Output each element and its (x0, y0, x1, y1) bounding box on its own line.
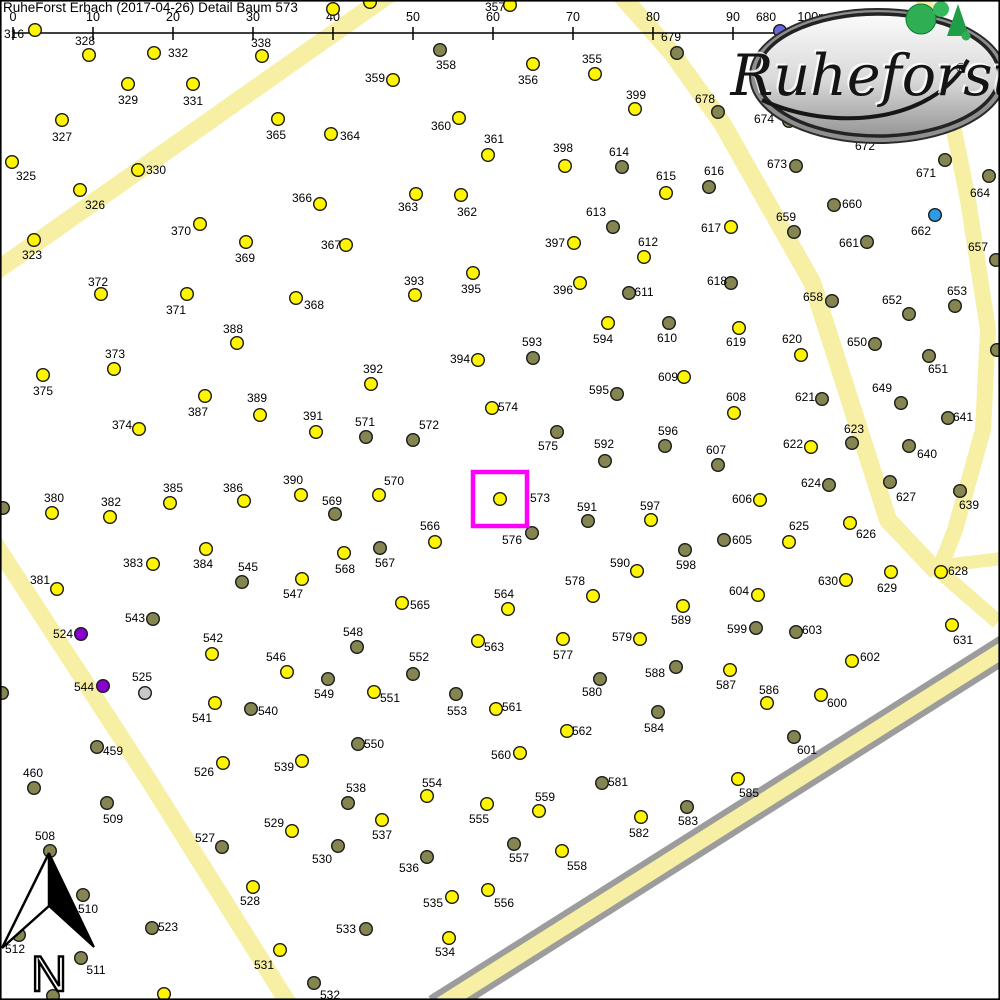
tree-label-575: 575 (538, 439, 558, 453)
tree-dot-582[interactable] (635, 811, 648, 824)
tree-dot-622[interactable] (805, 441, 818, 454)
tree-dot-640[interactable] (903, 440, 916, 453)
tree-dot-564[interactable] (502, 603, 515, 616)
tree-dot-607[interactable] (712, 459, 725, 472)
tree-dot[interactable] (327, 3, 340, 16)
tree-label-571: 571 (355, 415, 375, 429)
tree-label-619: 619 (726, 335, 746, 349)
map-canvas[interactable]: 0102030405060708090100m 3163283323383573… (0, 0, 1000, 1000)
tree-dot-551[interactable] (368, 686, 381, 699)
tree-label-653: 653 (947, 284, 967, 298)
tree-dot-584[interactable] (652, 706, 665, 719)
tree-dot-370[interactable] (194, 218, 207, 231)
tree-label-358: 358 (436, 58, 456, 72)
tree-dot-545[interactable] (236, 576, 249, 589)
tree-dot-625[interactable] (783, 536, 796, 549)
tree-dot-558[interactable] (556, 845, 569, 858)
tree-dot-327[interactable] (56, 114, 69, 127)
tree-label-510: 510 (78, 902, 98, 916)
tree-dot-526[interactable] (217, 757, 230, 770)
tree-label-674: 674 (754, 112, 774, 126)
tree-dot-374[interactable] (133, 423, 146, 436)
tree-dot-540[interactable] (245, 703, 258, 716)
tree-label-375: 375 (33, 384, 53, 398)
tree-dot-591[interactable] (582, 515, 595, 528)
tree-dot-390[interactable] (295, 489, 308, 502)
tree-dot-529[interactable] (286, 825, 299, 838)
tree-label-566: 566 (420, 519, 440, 533)
tree-label-614: 614 (609, 145, 629, 159)
tree-dot-569[interactable] (329, 508, 342, 521)
tree-dot-380[interactable] (46, 507, 59, 520)
tree-dot-606[interactable] (754, 494, 767, 507)
tree-dot-384[interactable] (200, 543, 213, 556)
tree-dot-620[interactable] (795, 349, 808, 362)
tree-dot-394[interactable] (472, 354, 485, 367)
tree-label-393: 393 (404, 274, 424, 288)
tree-dot-570[interactable] (373, 489, 386, 502)
tree-label-658: 658 (803, 290, 823, 304)
tree-label-604: 604 (729, 584, 749, 598)
tree-dot-323[interactable] (28, 234, 41, 247)
tree-dot-555[interactable] (481, 798, 494, 811)
tree-label-628: 628 (948, 564, 968, 578)
tree-dot-395[interactable] (467, 267, 480, 280)
tree-label-356: 356 (518, 73, 538, 87)
tree-dot-673[interactable] (790, 160, 803, 173)
tree-dot-661[interactable] (861, 236, 874, 249)
tree-dot-525[interactable] (139, 687, 152, 700)
tree-dot-548[interactable] (351, 641, 364, 654)
tree-dot-367[interactable] (340, 239, 353, 252)
tree-dot-330[interactable] (132, 164, 145, 177)
tree-dot-386[interactable] (238, 495, 251, 508)
tree-label-680: 680 (756, 10, 776, 24)
tree-dot-590[interactable] (631, 565, 644, 578)
tree-label-523: 523 (158, 920, 178, 934)
tree-label-394: 394 (450, 352, 470, 366)
tree-label-580: 580 (582, 685, 602, 699)
tree-dot-528[interactable] (247, 881, 260, 894)
tree-dot-325[interactable] (6, 156, 19, 169)
tree-dot-565[interactable] (396, 597, 409, 610)
tree-label-548: 548 (343, 625, 363, 639)
tree-label-525: 525 (132, 670, 152, 684)
tree-dot-382[interactable] (104, 511, 117, 524)
tree-dot-530[interactable] (332, 840, 345, 853)
tree-dot-628[interactable] (935, 566, 948, 579)
tree-dot-587[interactable] (724, 664, 737, 677)
tree-dot-389[interactable] (254, 409, 267, 422)
tree-dot-578[interactable] (587, 590, 600, 603)
tree-dot-527[interactable] (216, 841, 229, 854)
tree-label-549: 549 (314, 687, 334, 701)
tree-dot-381[interactable] (51, 583, 64, 596)
tree-label-380: 380 (44, 491, 64, 505)
tree-label-625: 625 (789, 519, 809, 533)
tree-label-537: 537 (372, 828, 392, 842)
tree-dot-594[interactable] (602, 317, 615, 330)
tree-dot-571[interactable] (360, 431, 373, 444)
tree-label-546: 546 (266, 650, 286, 664)
tree-label-629: 629 (877, 581, 897, 595)
tree-dot-600[interactable] (815, 689, 828, 702)
tree-dot-369[interactable] (240, 236, 253, 249)
tree-dot-581[interactable] (596, 777, 609, 790)
tree-dot-534[interactable] (443, 932, 456, 945)
tree-dot-596[interactable] (659, 440, 672, 453)
tree-label-630: 630 (818, 574, 838, 588)
tree-dot-651[interactable] (923, 350, 936, 363)
tree-dot-373[interactable] (108, 363, 121, 376)
tree-label-569: 569 (322, 494, 342, 508)
tree-dot-653[interactable] (949, 300, 962, 313)
tree-dot-597[interactable] (645, 514, 658, 527)
tree-label-560: 560 (491, 748, 511, 762)
tree-dot-372[interactable] (95, 288, 108, 301)
tree-label-589: 589 (671, 613, 691, 627)
tree-dot-329[interactable] (122, 78, 135, 91)
tree-dot-614[interactable] (616, 161, 629, 174)
tree-label-541: 541 (192, 711, 212, 725)
tree-label-579: 579 (612, 630, 632, 644)
tree-label-608: 608 (726, 390, 746, 404)
tree-dot-399[interactable] (629, 103, 642, 116)
tree-dot-566[interactable] (429, 536, 442, 549)
tree-dot-572[interactable] (407, 434, 420, 447)
tree-label-562: 562 (572, 724, 592, 738)
tree-dot-537[interactable] (376, 814, 389, 827)
tree-label-565: 565 (410, 598, 430, 612)
tree-dot-658[interactable] (826, 295, 839, 308)
tree-dot-510[interactable] (77, 889, 90, 902)
tree-dot-559[interactable] (533, 805, 546, 818)
tree-label-364: 364 (340, 129, 360, 143)
tree-dot-615[interactable] (660, 187, 673, 200)
tree-dot-538[interactable] (342, 797, 355, 810)
tree-label-387: 387 (188, 405, 208, 419)
tree-dot-557[interactable] (508, 838, 521, 851)
tree-label-611: 611 (634, 285, 653, 299)
tree-dot-602[interactable] (846, 655, 859, 668)
tree-dot-371[interactable] (181, 288, 194, 301)
tree-label-395: 395 (461, 282, 481, 296)
tree-label-581: 581 (608, 775, 628, 789)
map-window: 0102030405060708090100m 3163283323383573… (0, 0, 1000, 1000)
tree-label-388: 388 (223, 322, 243, 336)
tree-dot-387[interactable] (199, 390, 212, 403)
tree-dot-553[interactable] (450, 688, 463, 701)
tree-dot-460[interactable] (28, 782, 41, 795)
tree-label-612: 612 (638, 235, 658, 249)
tree-dot-362[interactable] (455, 189, 468, 202)
tree-label-673: 673 (767, 157, 787, 171)
tree-dot-511[interactable] (75, 952, 88, 965)
tree-dot-547[interactable] (296, 573, 309, 586)
tree-label-544: 544 (74, 680, 94, 694)
tree-dot-649[interactable] (895, 397, 908, 410)
tree-label-617: 617 (701, 221, 721, 235)
tree-dot-533[interactable] (360, 923, 373, 936)
tree-label-331: 331 (183, 94, 203, 108)
tree-dot-601[interactable] (788, 731, 801, 744)
tree-dot-609[interactable] (678, 371, 691, 384)
tree-label-556: 556 (494, 896, 514, 910)
tree-dot-459[interactable] (91, 741, 104, 754)
tree-dot-509[interactable] (101, 797, 114, 810)
tree-dot-598[interactable] (679, 544, 692, 557)
tree-dot-630[interactable] (840, 574, 853, 587)
tree-label-664: 664 (970, 186, 990, 200)
tree-label-373: 373 (105, 347, 125, 361)
tree-label-361: 361 (484, 132, 504, 146)
tree-label-671: 671 (916, 166, 936, 180)
tree-label-651: 651 (928, 362, 948, 376)
tree-label-371: 371 (166, 303, 186, 317)
tree-label-567: 567 (375, 556, 395, 570)
tree-dot-568[interactable] (338, 547, 351, 560)
tree-dot-328[interactable] (83, 49, 96, 62)
tree-label-622: 622 (783, 437, 803, 451)
tree-dot-619[interactable] (733, 322, 746, 335)
tree-dot-593[interactable] (527, 352, 540, 365)
tree-label-652: 652 (882, 293, 902, 307)
tree-dot-524[interactable] (75, 628, 88, 641)
tree-label-572: 572 (419, 418, 439, 432)
tree-label-594: 594 (593, 332, 613, 346)
tree-dot-359[interactable] (387, 74, 400, 87)
tree-label-557: 557 (509, 851, 529, 865)
tree-label-551: 551 (380, 691, 400, 705)
tree-dot-592[interactable] (599, 455, 612, 468)
tree-label-591: 591 (577, 500, 597, 514)
tree-label-329: 329 (118, 93, 138, 107)
tree-label-559: 559 (535, 790, 555, 804)
tree-dot-595[interactable] (611, 388, 624, 401)
tree-label-601: 601 (797, 743, 817, 757)
tree-label-550: 550 (364, 737, 384, 751)
tree-dot-616[interactable] (703, 181, 716, 194)
tree-dot-332[interactable] (148, 47, 161, 60)
tree-label-326: 326 (85, 198, 105, 212)
tree-label-554: 554 (422, 776, 442, 790)
tree-label-460: 460 (23, 766, 43, 780)
tree-dot-604[interactable] (752, 589, 765, 602)
tree-dot-678[interactable] (712, 106, 725, 119)
tree-dot-355[interactable] (589, 68, 602, 81)
tree-dot-356[interactable] (527, 58, 540, 71)
scale-tick-label: 80 (646, 10, 660, 24)
registered-mark: ® (956, 60, 966, 75)
tree-dot-560[interactable] (514, 747, 527, 760)
tree-label-512: 512 (5, 942, 25, 956)
tree-dot-599[interactable] (750, 622, 763, 635)
tree-dot-383[interactable] (147, 558, 160, 571)
tree-label-640: 640 (917, 447, 937, 461)
tree-label-627: 627 (896, 490, 916, 504)
tree-label-659: 659 (776, 210, 796, 224)
tree-dot-652[interactable] (903, 308, 916, 321)
tree-label-626: 626 (856, 527, 876, 541)
tree-dot-567[interactable] (374, 542, 387, 555)
tree-label-624: 624 (801, 476, 821, 490)
tree-label-564: 564 (494, 587, 514, 601)
tree-dot-639[interactable] (954, 485, 967, 498)
tree-dot-621[interactable] (816, 393, 829, 406)
tree-label-526: 526 (194, 765, 214, 779)
tree-dot-360[interactable] (453, 112, 466, 125)
tree-label-382: 382 (101, 495, 121, 509)
tree-dot-650[interactable] (869, 338, 882, 351)
tree-label-357: 357 (485, 0, 505, 14)
tree-label-359: 359 (365, 71, 385, 85)
tree-dot-629[interactable] (885, 566, 898, 579)
tree-dot-363[interactable] (410, 188, 423, 201)
tree-dot-316[interactable] (29, 24, 42, 37)
tree-label-661: 661 (839, 236, 859, 250)
tree-dot-585[interactable] (732, 773, 745, 786)
tree-label-678: 678 (695, 92, 715, 106)
tree-dot-391[interactable] (310, 426, 323, 439)
tree-label-383: 383 (123, 556, 143, 570)
tree-dot-536[interactable] (421, 851, 434, 864)
tree-dot-577[interactable] (557, 633, 570, 646)
tree-label-618: 618 (707, 274, 727, 288)
tree-label-369: 369 (235, 251, 255, 265)
tree-dot-617[interactable] (725, 221, 738, 234)
tree-label-542: 542 (203, 631, 223, 645)
tree-dot-535[interactable] (446, 891, 459, 904)
tree-label-553: 553 (447, 704, 467, 718)
tree-label-365: 365 (266, 128, 286, 142)
tree-dot-326[interactable] (74, 184, 87, 197)
tree-dot-523[interactable] (146, 922, 159, 935)
tree-dot-338[interactable] (256, 50, 269, 63)
tree-label-615: 615 (656, 169, 676, 183)
tree-dot-361[interactable] (482, 149, 495, 162)
tree-label-587: 587 (716, 678, 736, 692)
tree-label-602: 602 (860, 650, 880, 664)
tree-dot-365[interactable] (272, 113, 285, 126)
tree-dot-612[interactable] (638, 251, 651, 264)
tree-dot-627[interactable] (884, 476, 897, 489)
tree-dot-542[interactable] (206, 648, 219, 661)
tree-label-592: 592 (594, 437, 614, 451)
tree-dot-664[interactable] (983, 170, 996, 183)
tree-dot-532[interactable] (308, 977, 321, 990)
tree-dot-662[interactable] (929, 209, 942, 222)
tree-dot-539[interactable] (296, 755, 309, 768)
tree-dot-543[interactable] (147, 613, 160, 626)
tree-dot-393[interactable] (409, 289, 422, 302)
tree-dot-586[interactable] (761, 697, 774, 710)
tree-dot-603[interactable] (790, 626, 803, 639)
tree-dot-574[interactable] (486, 402, 499, 415)
tree-dot-366[interactable] (314, 198, 327, 211)
tree-dot-561[interactable] (490, 703, 503, 716)
tree-dot-392[interactable] (365, 378, 378, 391)
tree-label-583: 583 (678, 814, 698, 828)
tree-dot[interactable] (158, 988, 171, 1000)
tree-label-328: 328 (75, 34, 95, 48)
tree-label-588: 588 (645, 666, 665, 680)
tree-dot-580[interactable] (594, 673, 607, 686)
tree-dot-364[interactable] (325, 128, 338, 141)
tree-label-586: 586 (759, 683, 779, 697)
tree-label-599: 599 (727, 622, 747, 636)
tree-dot-357[interactable] (504, 0, 517, 11)
tree-dot-605[interactable] (718, 534, 731, 547)
tree-dot-679[interactable] (671, 47, 684, 60)
tree-dot-385[interactable] (164, 497, 177, 510)
tree-dot-375[interactable] (37, 369, 50, 382)
tree-dot-610[interactable] (663, 317, 676, 330)
tree-dot-397[interactable] (568, 237, 581, 250)
tree-label-610: 610 (657, 331, 677, 345)
tree-dot-583[interactable] (681, 801, 694, 814)
tree-dot-388[interactable] (231, 337, 244, 350)
tree-dot-573[interactable] (494, 493, 507, 506)
tree-dot-631[interactable] (946, 619, 959, 632)
tree-label-597: 597 (640, 499, 660, 513)
tree-dot-398[interactable] (559, 160, 572, 173)
tree-dot-541[interactable] (209, 697, 222, 710)
tree-dot-671[interactable] (939, 154, 952, 167)
tree-dot-544[interactable] (97, 680, 110, 693)
tree-label-649: 649 (872, 381, 892, 395)
tree-dot-579[interactable] (634, 633, 647, 646)
tree-dot-588[interactable] (670, 661, 683, 674)
tree-dot-626[interactable] (844, 517, 857, 530)
tree-dot-396[interactable] (574, 277, 587, 290)
tree-label-368: 368 (304, 298, 324, 312)
tree-dot-556[interactable] (482, 884, 495, 897)
tree-label-397: 397 (545, 236, 565, 250)
tree-label-538: 538 (346, 781, 366, 795)
tree-dot-613[interactable] (607, 221, 620, 234)
tree-label-540: 540 (258, 704, 278, 718)
tree-label-360: 360 (431, 119, 451, 133)
tree-dot-660[interactable] (828, 199, 841, 212)
tree-dot-576[interactable] (526, 527, 539, 540)
tree-dot-624[interactable] (823, 479, 836, 492)
tree-dot-358[interactable] (434, 44, 447, 57)
tree-dot-611[interactable] (623, 287, 636, 300)
tree-dot-608[interactable] (728, 407, 741, 420)
tree-label-366: 366 (292, 191, 312, 205)
tree-dot-531[interactable] (274, 944, 287, 957)
tree-dot-554[interactable] (421, 790, 434, 803)
tree-label-323: 323 (22, 248, 42, 262)
tree-label-596: 596 (658, 424, 678, 438)
tree-dot-563[interactable] (472, 635, 485, 648)
tree-label-641: 641 (953, 410, 973, 424)
tree-dot-589[interactable] (677, 600, 690, 613)
tree-label-621: 621 (795, 390, 815, 404)
tree-dot-368[interactable] (290, 292, 303, 305)
tree-label-532: 532 (320, 988, 340, 1000)
tree-dot-575[interactable] (551, 426, 564, 439)
tree-dot-552[interactable] (407, 668, 420, 681)
tree-dot-550[interactable] (352, 738, 365, 751)
tree-dot-331[interactable] (187, 78, 200, 91)
tree-label-558: 558 (567, 859, 587, 873)
tree-label-552: 552 (409, 650, 429, 664)
tree-dot-546[interactable] (281, 666, 294, 679)
tree-dot-659[interactable] (788, 226, 801, 239)
tree-dot-623[interactable] (846, 437, 859, 450)
tree-dot-549[interactable] (322, 673, 335, 686)
